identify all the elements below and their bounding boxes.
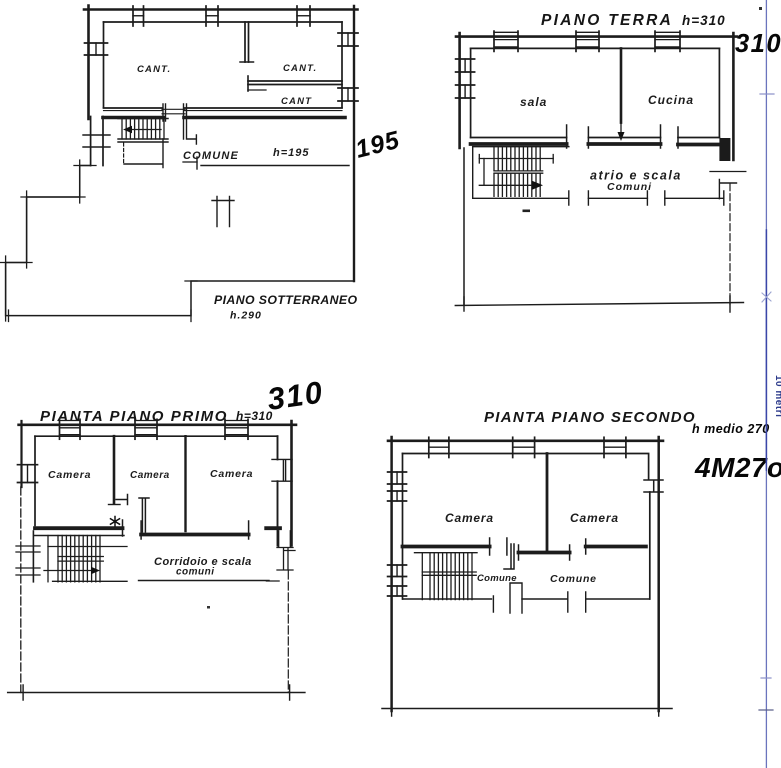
svg-text:PIANTA PIANO PRIMO: PIANTA PIANO PRIMO [40, 408, 228, 425]
svg-text:Comune: Comune [550, 573, 597, 585]
svg-text:h=195: h=195 [273, 147, 310, 159]
svg-text:CANT.: CANT. [283, 63, 317, 74]
svg-text:h medio 270: h medio 270 [692, 422, 770, 436]
svg-text:PIANTA PIANO SECONDO: PIANTA PIANO SECONDO [484, 409, 696, 426]
svg-text:Camera: Camera [445, 511, 494, 525]
svg-text:comuni: comuni [176, 567, 215, 578]
svg-text:CANT.: CANT. [137, 64, 171, 75]
svg-text:CANT: CANT [281, 96, 312, 107]
svg-text:Cucina: Cucina [648, 93, 694, 107]
svg-text:h.290: h.290 [230, 310, 262, 322]
svg-text:PIANO SOTTERRANEO: PIANO SOTTERRANEO [214, 293, 357, 307]
svg-text:4M27o: 4M27o [694, 452, 781, 483]
svg-text:Camera: Camera [130, 470, 170, 481]
svg-text:Camera: Camera [48, 469, 91, 481]
svg-text:sala: sala [520, 95, 547, 109]
svg-text:10 metri: 10 metri [773, 375, 781, 417]
svg-text:310: 310 [735, 30, 781, 58]
svg-text:Camera: Camera [570, 511, 619, 525]
svg-text:Camera: Camera [210, 468, 253, 480]
svg-text:Comuni: Comuni [607, 181, 652, 193]
svg-text:COMUNE: COMUNE [183, 150, 239, 162]
svg-text:h=310: h=310 [682, 13, 726, 28]
svg-text:PIANO TERRA: PIANO TERRA [541, 12, 673, 29]
